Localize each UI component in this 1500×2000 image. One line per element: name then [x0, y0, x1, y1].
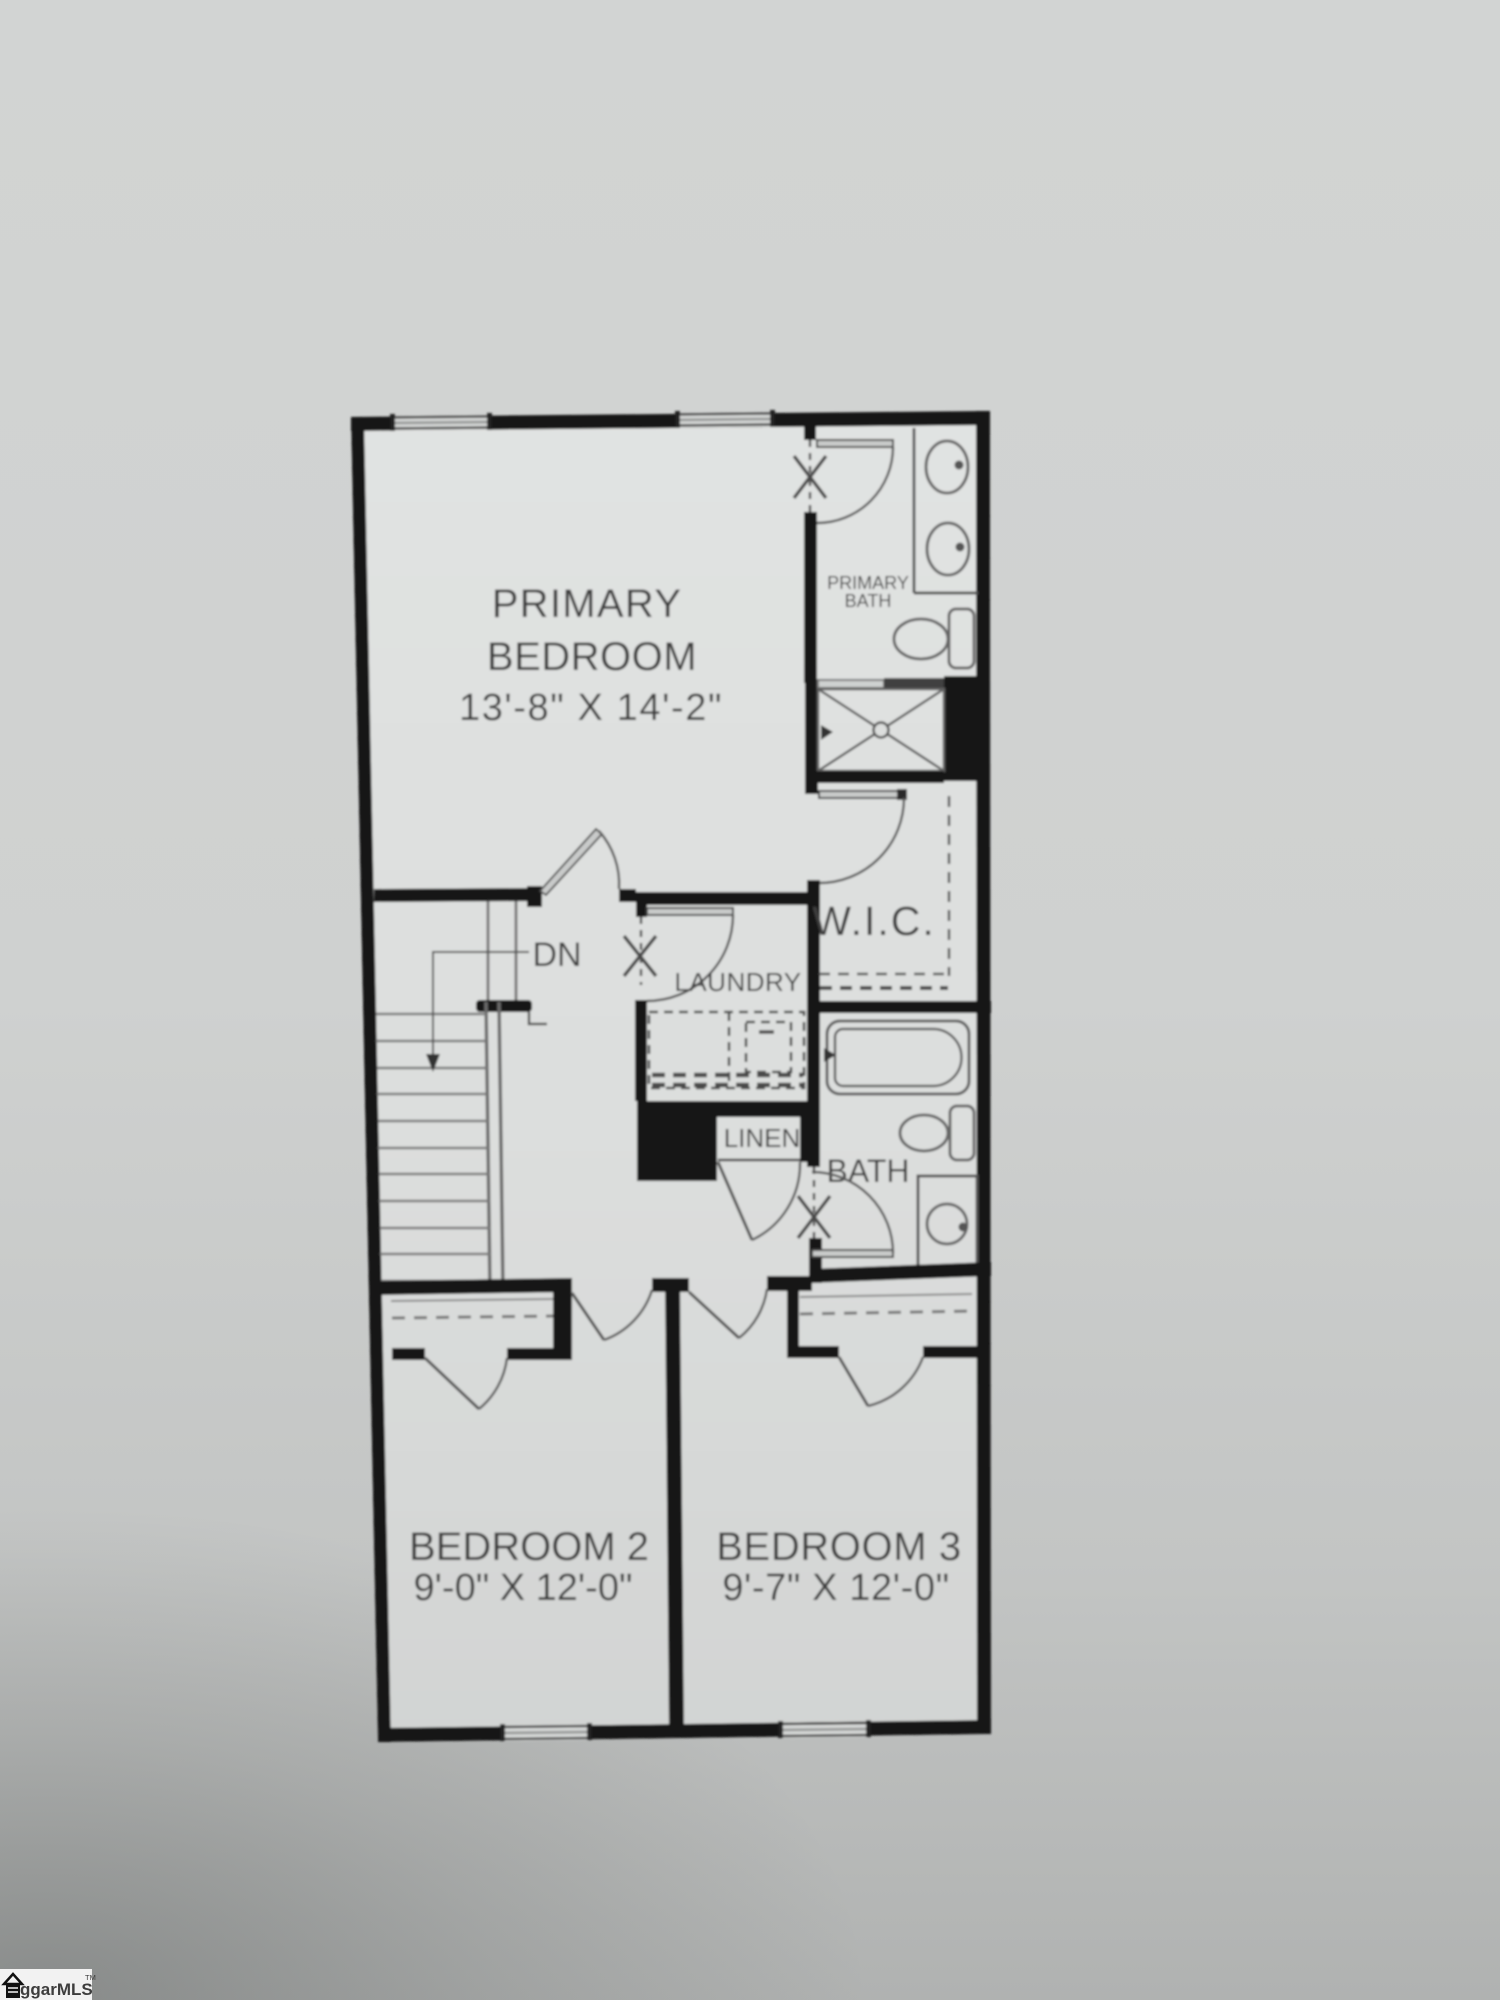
svg-text:BATH: BATH: [827, 1153, 910, 1189]
svg-text:9'-7" X 12'-0": 9'-7" X 12'-0": [722, 1567, 949, 1609]
svg-text:TM: TM: [85, 1973, 96, 1982]
svg-text:ggarMLS: ggarMLS: [20, 1980, 93, 1999]
svg-text:PRIMARY: PRIMARY: [492, 582, 683, 626]
svg-text:PRIMARY: PRIMARY: [827, 573, 909, 593]
svg-text:9'-0" X 12'-0": 9'-0" X 12'-0": [414, 1567, 633, 1609]
svg-text:BATH: BATH: [845, 591, 892, 611]
svg-text:DN: DN: [532, 936, 581, 974]
svg-text:13'-8" X 14'-2": 13'-8" X 14'-2": [459, 687, 723, 729]
svg-text:BEDROOM 2: BEDROOM 2: [409, 1525, 649, 1569]
svg-text:W.I.C.: W.I.C.: [812, 898, 936, 944]
svg-text:BEDROOM: BEDROOM: [487, 635, 697, 679]
svg-text:LINEN: LINEN: [724, 1123, 801, 1153]
svg-text:LAUNDRY: LAUNDRY: [674, 967, 801, 997]
svg-text:BEDROOM 3: BEDROOM 3: [716, 1525, 961, 1569]
